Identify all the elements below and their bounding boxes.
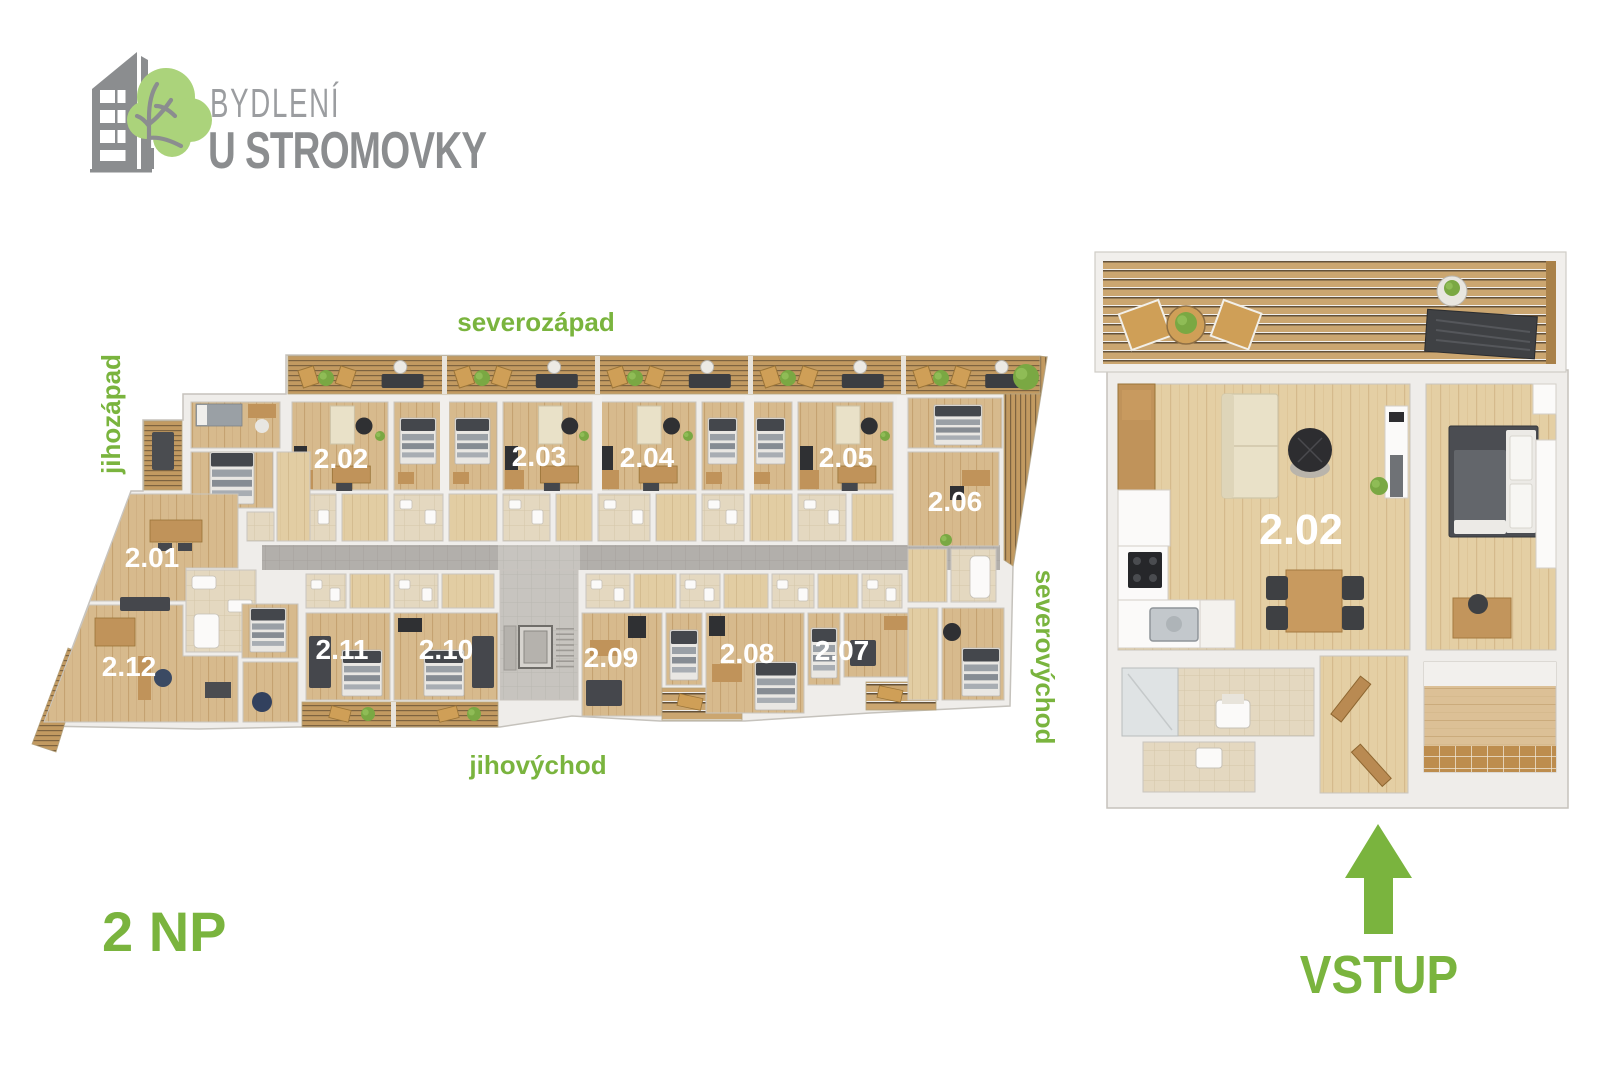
- svg-text:U STROMOVKY: U STROMOVKY: [208, 121, 487, 179]
- svg-text:2.05: 2.05: [819, 442, 874, 473]
- svg-text:2.09: 2.09: [584, 642, 639, 673]
- svg-text:2.01: 2.01: [125, 542, 180, 573]
- svg-text:2.04: 2.04: [620, 442, 675, 473]
- svg-text:2.07: 2.07: [815, 635, 870, 666]
- svg-text:2.08: 2.08: [720, 638, 775, 669]
- svg-text:BYDLENÍ: BYDLENÍ: [210, 81, 340, 127]
- svg-text:2.11: 2.11: [316, 634, 369, 665]
- svg-text:severozápad: severozápad: [457, 307, 615, 337]
- svg-text:jihovýchod: jihovýchod: [468, 750, 606, 780]
- svg-text:2.12: 2.12: [102, 651, 157, 682]
- svg-text:2.02: 2.02: [1259, 506, 1343, 554]
- svg-text:2 NP: 2 NP: [102, 900, 227, 963]
- svg-text:VSTUP: VSTUP: [1300, 944, 1458, 1005]
- svg-text:2.02: 2.02: [314, 443, 369, 474]
- svg-text:severovýchod: severovýchod: [1030, 570, 1060, 745]
- svg-text:2.03: 2.03: [512, 441, 567, 472]
- svg-text:jihozápad: jihozápad: [96, 354, 126, 475]
- svg-text:2.06: 2.06: [928, 486, 983, 517]
- svg-text:2.10: 2.10: [419, 634, 474, 665]
